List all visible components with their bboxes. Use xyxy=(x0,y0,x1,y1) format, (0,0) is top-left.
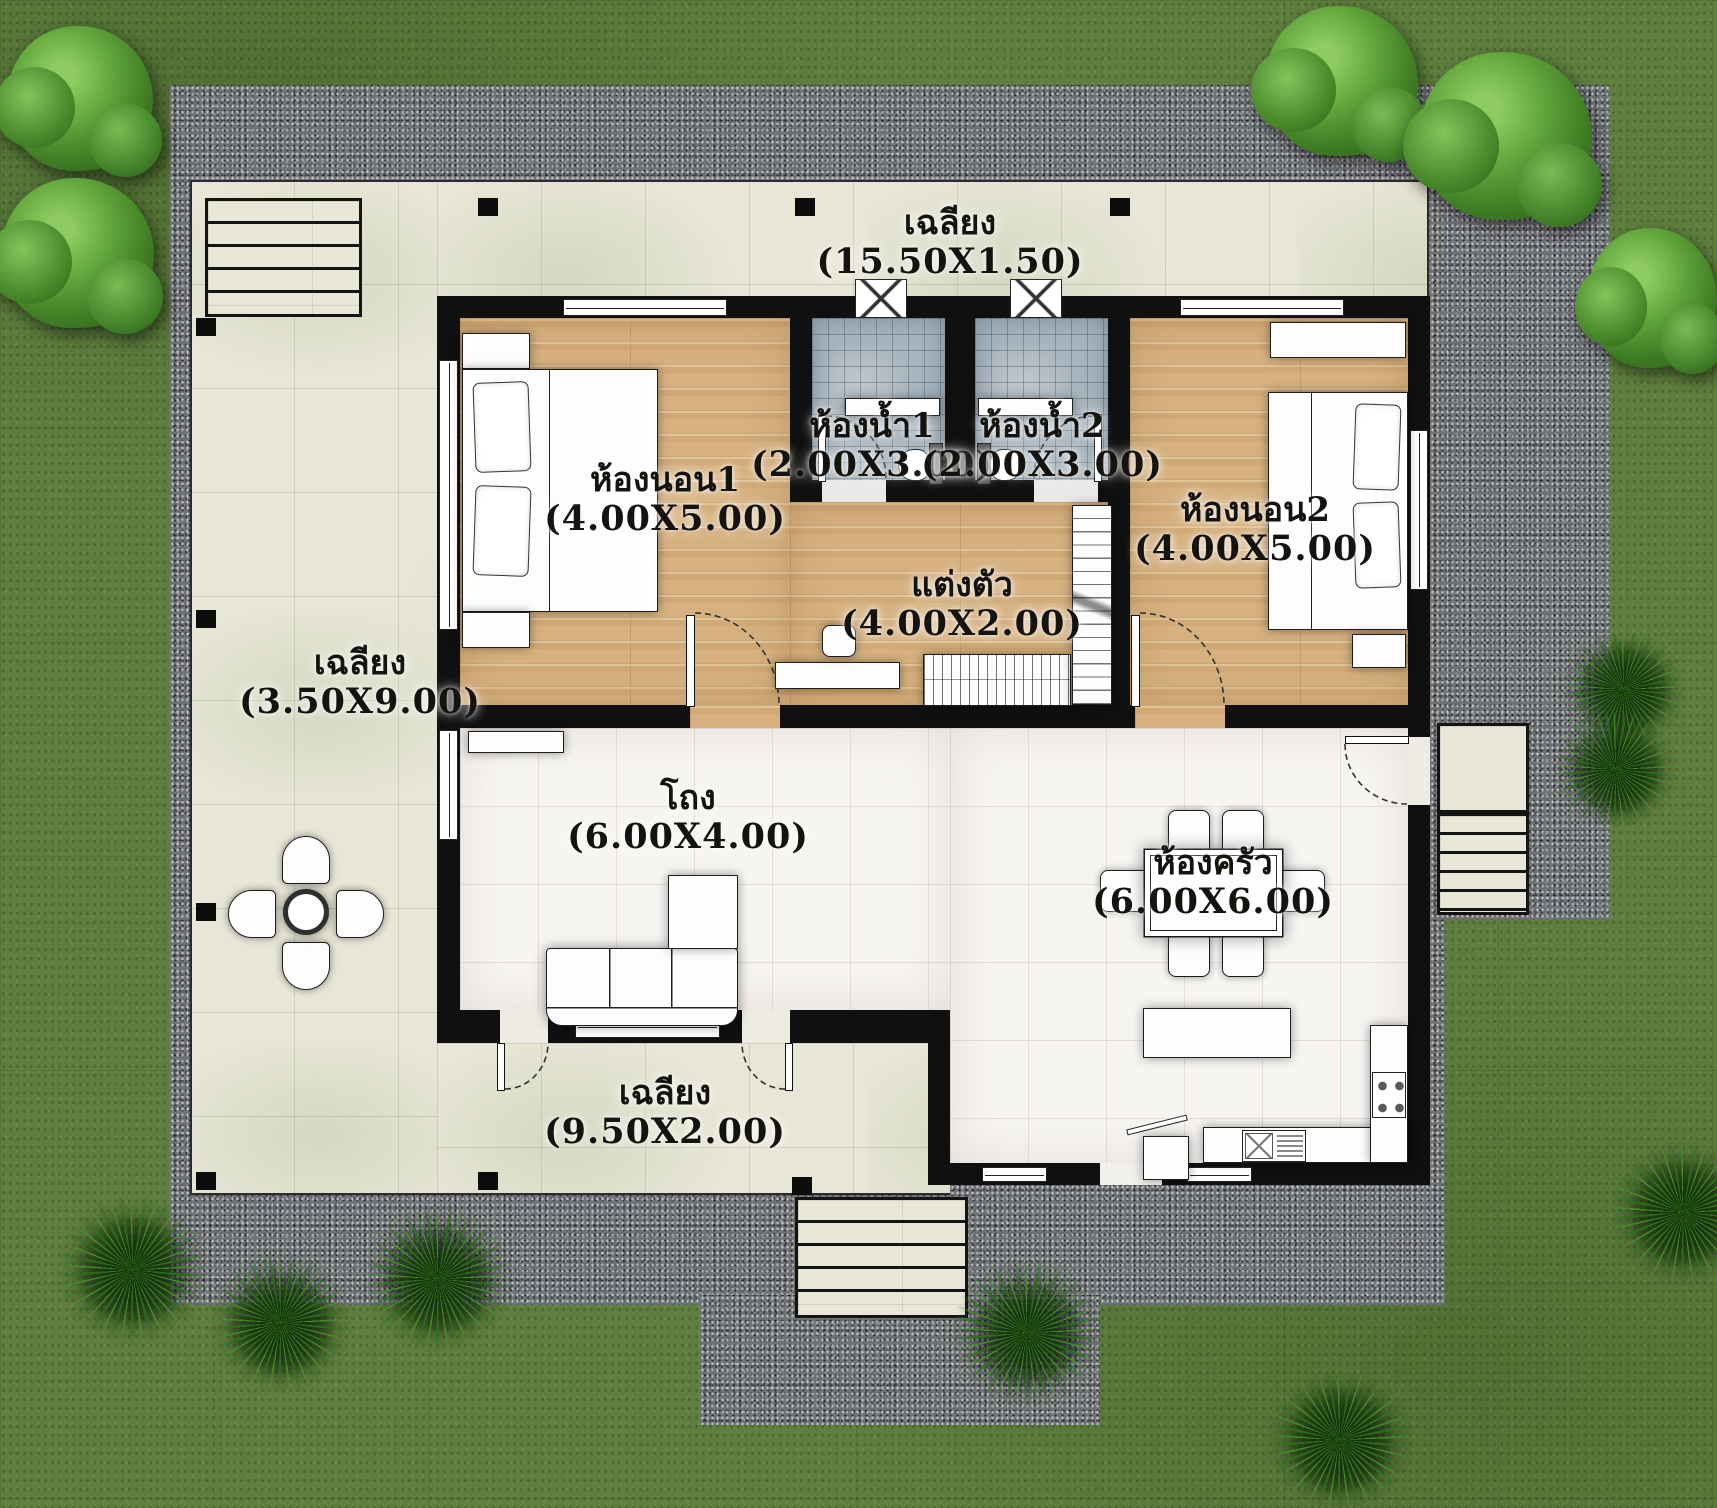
label-bathroom-2: ห้องน้ำ2 (2.00X3.00) xyxy=(921,408,1163,484)
stove xyxy=(1372,1072,1406,1118)
dining-chair xyxy=(1168,934,1210,977)
trash-bin xyxy=(1143,1136,1189,1180)
pillow xyxy=(472,485,531,577)
room-name: ห้องนอน2 xyxy=(1134,492,1376,529)
room-name: แต่งตัว xyxy=(841,567,1083,604)
floor-plan: เฉลียง (15.50X1.50) ห้องนอน1 (4.00X5.00)… xyxy=(0,0,1717,1508)
label-bedroom-1: ห้องนอน1 (4.00X5.00) xyxy=(544,462,786,538)
window-bedroom2-top xyxy=(1180,299,1344,316)
tree-icon xyxy=(1266,6,1418,156)
vanity-table xyxy=(775,662,900,689)
door-opening-kitchen-side xyxy=(1408,737,1430,805)
terrace-edge xyxy=(190,180,192,1195)
shrub-icon xyxy=(1608,1140,1717,1285)
shrub-icon xyxy=(1548,712,1683,827)
terrace-round-table xyxy=(283,889,329,935)
door-arc-bedroom1 xyxy=(695,613,779,705)
room-size: (3.50X9.00) xyxy=(239,682,481,721)
window-kitchen-2 xyxy=(1187,1167,1252,1182)
window-bedroom1-left xyxy=(439,360,458,630)
room-name: เฉลียง xyxy=(544,1075,786,1112)
room-name: ห้องครัว xyxy=(1092,845,1334,882)
window-bathroom1 xyxy=(855,279,907,318)
room-size: (4.00X5.00) xyxy=(544,499,786,538)
label-dressing: แต่งตัว (4.00X2.00) xyxy=(841,567,1083,643)
door-leaf-kitchen-side xyxy=(1345,736,1409,744)
column xyxy=(196,903,216,921)
room-name: ห้องน้ำ2 xyxy=(921,408,1163,445)
sink-drainboard xyxy=(1277,1135,1303,1157)
column xyxy=(792,1177,812,1195)
door-leaf-bedroom1 xyxy=(686,615,695,707)
door-opening-hall-1 xyxy=(500,1010,548,1043)
door-opening-hall-2 xyxy=(742,1010,790,1043)
column xyxy=(478,1172,498,1190)
nightstand xyxy=(462,333,530,369)
palm-icon xyxy=(208,1252,353,1394)
tv-console xyxy=(468,731,564,753)
stairs-bottom xyxy=(795,1197,968,1318)
terrace-chair xyxy=(336,890,384,938)
palm-icon xyxy=(362,1205,514,1353)
pillow xyxy=(472,381,531,473)
terrace-chair xyxy=(228,890,276,938)
wardrobe xyxy=(923,654,1071,706)
terrace-chair xyxy=(282,942,330,990)
room-size: (4.00X5.00) xyxy=(1134,529,1376,568)
room-name: เฉลียง xyxy=(239,645,481,682)
door-leaf-hall-1 xyxy=(497,1043,505,1091)
tree-icon xyxy=(1420,52,1592,220)
column xyxy=(795,198,815,216)
door-arc-hall-1 xyxy=(505,1043,548,1089)
tree-icon xyxy=(2,178,154,328)
window-bedroom1-top xyxy=(563,299,727,316)
room-name: เฉลียง xyxy=(816,205,1083,242)
wall-bedroom-zone xyxy=(437,705,1430,728)
room-size: (6.00X6.00) xyxy=(1092,882,1334,921)
dresser xyxy=(1270,322,1406,358)
label-kitchen: ห้องครัว (6.00X6.00) xyxy=(1092,845,1334,921)
label-porch-bottom: เฉลียง (9.50X2.00) xyxy=(544,1075,786,1151)
column xyxy=(196,318,216,336)
pillow xyxy=(1353,403,1402,491)
column xyxy=(196,1172,216,1190)
nightstand xyxy=(1352,634,1406,668)
sink-basin xyxy=(1245,1133,1273,1159)
column xyxy=(478,198,498,216)
label-porch-left: เฉลียง (3.50X9.00) xyxy=(239,645,481,721)
door-leaf-bedroom2 xyxy=(1131,615,1140,707)
room-size: (4.00X2.00) xyxy=(841,604,1083,643)
window-bedroom2-right xyxy=(1410,430,1428,590)
room-size: (6.00X4.00) xyxy=(567,817,809,856)
label-hall: โถง (6.00X4.00) xyxy=(567,780,809,856)
palm-icon xyxy=(1262,1372,1417,1508)
terrace-edge xyxy=(1427,180,1429,296)
tree-icon xyxy=(1588,228,1717,368)
room-size: (15.50X1.50) xyxy=(816,242,1083,281)
door-opening-bedroom1 xyxy=(690,705,780,728)
room-size: (9.50X2.00) xyxy=(544,1112,786,1151)
terrace-edge xyxy=(190,180,1429,182)
palm-icon xyxy=(952,1258,1102,1408)
label-bedroom-2: ห้องนอน2 (4.00X5.00) xyxy=(1134,492,1376,568)
sofa xyxy=(546,948,738,1026)
tree-icon xyxy=(8,26,153,171)
stairs-side-landing xyxy=(1437,723,1529,813)
door-arc-kitchen-side xyxy=(1345,744,1407,804)
dining-chair xyxy=(1222,934,1264,977)
window-bathroom2 xyxy=(1010,279,1062,318)
sofa-chaise xyxy=(668,875,738,949)
room-name: โถง xyxy=(567,780,809,817)
terrace-chair xyxy=(282,836,330,884)
column xyxy=(196,610,216,628)
label-porch-top: เฉลียง (15.50X1.50) xyxy=(816,205,1083,281)
room-name: ห้องนอน1 xyxy=(544,462,786,499)
window-hall-left xyxy=(439,730,458,840)
stairs-top-left xyxy=(205,198,362,317)
kitchen-island xyxy=(1143,1008,1291,1058)
door-leaf-hall-2 xyxy=(785,1043,793,1091)
column xyxy=(1110,198,1130,216)
door-opening-bedroom2 xyxy=(1135,705,1225,728)
room-size: (2.00X3.00) xyxy=(921,445,1163,484)
door-arc-bedroom2 xyxy=(1140,613,1224,705)
nightstand xyxy=(462,612,530,648)
terrace-edge xyxy=(190,1193,950,1195)
stairs-side xyxy=(1437,813,1529,915)
palm-icon xyxy=(55,1195,210,1345)
window-kitchen-1 xyxy=(982,1167,1047,1182)
